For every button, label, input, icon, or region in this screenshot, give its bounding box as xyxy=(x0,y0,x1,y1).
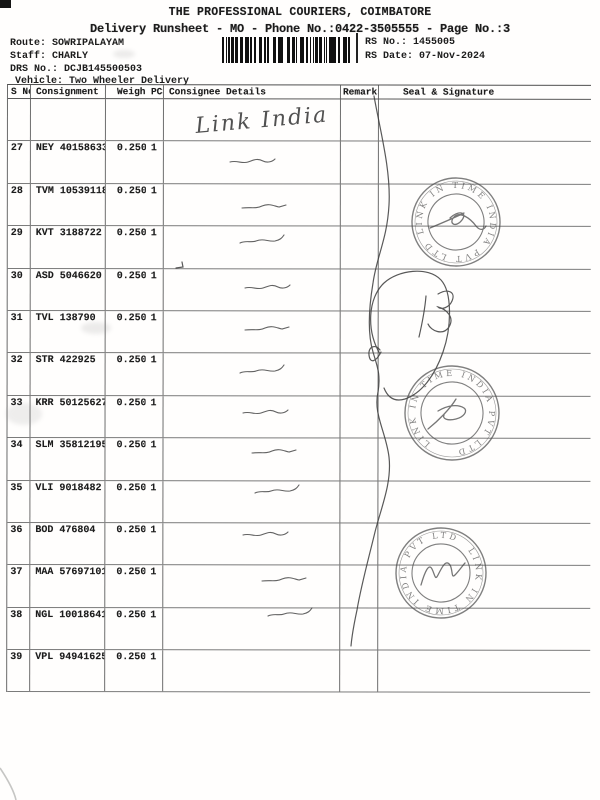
scanned-delivery-runsheet: THE PROFESSIONAL COURIERS, COIMBATORE De… xyxy=(0,0,600,800)
cell-consignee xyxy=(163,438,340,480)
cell-pcs: 1 xyxy=(145,481,163,522)
cell-pcs: 1 xyxy=(145,438,163,479)
cell-sno: 34 xyxy=(7,438,30,479)
staff-line: Staff: CHARLY xyxy=(10,51,189,64)
rs-no-label: RS No.: xyxy=(365,37,407,48)
cell-consignee xyxy=(164,311,341,353)
cell-seal xyxy=(379,227,591,269)
cell-weight: 0.250 xyxy=(105,650,145,691)
cell-consignment: KVT 3188722 xyxy=(31,226,106,267)
cell-sno: 39 xyxy=(7,650,30,691)
cell-sno: 38 xyxy=(7,608,30,649)
rs-date-label: RS Date: xyxy=(365,51,413,62)
drs-label: DRS No.: xyxy=(10,64,58,75)
cell-consignee xyxy=(164,184,341,226)
cell-pcs: 1 xyxy=(146,311,164,352)
table-header-row: S No Consignment No Weight PCS Consignee… xyxy=(8,85,591,100)
table-row: 36 BOD 476804 0.250 1 xyxy=(7,523,590,566)
rs-no-line: RS No.: 1455005 xyxy=(365,36,485,50)
cell-consignment: VPL 949416253 xyxy=(30,650,105,691)
table-row: 39 VPL 949416253 0.250 1 xyxy=(7,650,590,693)
route-value: SOWRIPALAYAM xyxy=(52,38,124,49)
cell-sno: 29 xyxy=(8,226,31,267)
cell-pcs xyxy=(146,99,164,140)
route-line: Route: SOWRIPALAYAM xyxy=(10,38,189,51)
cell-remarks xyxy=(341,142,379,183)
cell-sno: 27 xyxy=(8,141,31,182)
cell-weight: 0.250 xyxy=(105,608,145,649)
cell-seal xyxy=(379,354,591,396)
cell-remarks xyxy=(340,523,378,564)
cell-weight: 0.250 xyxy=(106,353,146,394)
cell-pcs: 1 xyxy=(145,565,163,606)
column-header-weight: Weight xyxy=(106,85,146,98)
cell-consignment: VLI 9018482 xyxy=(30,481,105,522)
cell-consignee xyxy=(164,142,341,184)
table-row: 34 SLM 358121955 0.250 1 xyxy=(7,438,590,481)
cell-consignment: NGL 100186410 xyxy=(30,608,105,649)
cell-seal xyxy=(379,100,591,142)
cell-sno: 31 xyxy=(8,311,31,352)
cell-consignment: MAA 576971019 xyxy=(30,565,105,606)
table-row: 31 TVL 138790 0.250 1 xyxy=(8,311,591,354)
cell-sno: 35 xyxy=(7,481,30,522)
column-header-remarks: Remarks xyxy=(341,85,379,98)
cell-seal xyxy=(378,439,590,481)
drs-line: DRS No.: DCJB145500503 xyxy=(10,64,189,77)
cell-pcs: 1 xyxy=(146,184,164,225)
rs-date-line: RS Date: 07-Nov-2024 xyxy=(365,50,485,64)
cell-weight: 0.250 xyxy=(106,142,146,183)
cell-weight: 0.250 xyxy=(106,311,146,352)
cell-consignment: SLM 358121955 xyxy=(30,438,105,479)
cell-pcs: 1 xyxy=(145,650,163,691)
cell-consignee xyxy=(163,481,340,523)
cell-consignee xyxy=(164,269,341,311)
cell-weight xyxy=(106,99,146,140)
table-row: 38 NGL 100186410 0.250 1 xyxy=(7,608,590,651)
column-header-consignment: Consignment No xyxy=(31,85,106,98)
cell-consignee xyxy=(164,354,341,396)
cell-consignment: KRR 50125627 xyxy=(31,396,106,437)
cell-seal xyxy=(378,566,590,608)
cell-pcs: 1 xyxy=(146,226,164,267)
table-row: 28 TVM 10539118 0.250 1 xyxy=(8,184,591,227)
cell-consignment xyxy=(31,99,106,140)
cell-remarks xyxy=(341,396,379,437)
cell-remarks xyxy=(341,311,379,352)
cell-consignee xyxy=(164,396,341,438)
cell-consignee xyxy=(163,650,340,692)
cell-weight: 0.250 xyxy=(106,226,146,267)
cell-remarks xyxy=(341,269,379,310)
consignment-table: S No Consignment No Weight PCS Consignee… xyxy=(6,84,591,693)
cell-consignment: STR 422925 xyxy=(31,353,106,394)
cell-pcs: 1 xyxy=(145,608,163,649)
cell-sno: 36 xyxy=(7,523,30,564)
cell-sno: 28 xyxy=(8,184,31,225)
rs-info: RS No.: 1455005 RS Date: 07-Nov-2024 xyxy=(365,36,485,64)
cell-sno: 32 xyxy=(8,353,31,394)
cell-consignee xyxy=(164,99,341,141)
cell-remarks xyxy=(340,651,378,692)
cell-weight: 0.250 xyxy=(106,184,146,225)
staff-label: Staff: xyxy=(10,51,46,62)
cell-remarks xyxy=(341,184,379,225)
cell-seal xyxy=(378,651,590,693)
cell-weight: 0.250 xyxy=(105,438,145,479)
cell-pcs: 1 xyxy=(146,269,164,310)
runsheet-barcode xyxy=(222,37,352,63)
cell-seal xyxy=(378,481,590,523)
cell-consignment: BOD 476804 xyxy=(30,523,105,564)
table-row: 33 KRR 50125627 0.250 1 xyxy=(8,396,591,439)
page-subtitle: Delivery Runsheet - MO - Phone No.:0422-… xyxy=(0,22,600,36)
table-row: 30 ASD 5046620 0.250 1 xyxy=(8,269,591,312)
table-row: 35 VLI 9018482 0.250 1 xyxy=(7,481,590,524)
column-header-sno: S No xyxy=(8,85,31,98)
cell-remarks xyxy=(340,566,378,607)
table-row: 37 MAA 576971019 0.250 1 xyxy=(7,565,590,608)
cell-weight: 0.250 xyxy=(106,396,146,437)
cell-remarks xyxy=(340,481,378,522)
cell-remarks xyxy=(341,99,379,140)
divider-line xyxy=(356,33,358,63)
cell-seal xyxy=(378,608,590,650)
column-header-seal: Seal & Signature xyxy=(379,86,591,99)
staff-value: CHARLY xyxy=(52,51,88,62)
cell-weight: 0.250 xyxy=(105,565,145,606)
column-header-pcs: PCS xyxy=(146,85,164,98)
table-row: 27 NEY 40158633 0.250 1 xyxy=(8,141,591,184)
cell-weight: 0.250 xyxy=(105,523,145,564)
cell-sno: 37 xyxy=(7,565,30,606)
cell-pcs: 1 xyxy=(145,523,163,564)
cell-consignee xyxy=(163,608,340,650)
cell-remarks xyxy=(340,439,378,480)
cell-consignment: ASD 5046620 xyxy=(31,269,106,310)
cell-seal xyxy=(378,523,590,565)
cell-consignment: TVM 10539118 xyxy=(31,184,106,225)
cell-consignee xyxy=(164,226,341,268)
cell-pcs: 1 xyxy=(146,142,164,183)
cell-consignment: NEY 40158633 xyxy=(31,141,106,182)
cell-seal xyxy=(379,311,591,353)
table-row xyxy=(8,99,591,142)
cell-weight: 0.250 xyxy=(106,269,146,310)
cell-pcs: 1 xyxy=(146,354,164,395)
drs-value: DCJB145500503 xyxy=(64,64,142,75)
rs-no-value: 1455005 xyxy=(413,37,455,48)
cell-remarks xyxy=(341,354,379,395)
cell-sno: 33 xyxy=(8,396,31,437)
runsheet-meta: Route: SOWRIPALAYAM Staff: CHARLY DRS No… xyxy=(10,38,189,89)
cell-sno: 30 xyxy=(8,269,31,310)
table-row: 32 STR 422925 0.250 1 xyxy=(8,353,591,396)
cell-consignment: TVL 138790 xyxy=(31,311,106,352)
cell-seal xyxy=(379,184,591,226)
page-title: THE PROFESSIONAL COURIERS, COIMBATORE xyxy=(0,6,600,19)
column-header-consignee: Consignee Details xyxy=(164,85,341,98)
cell-weight: 0.250 xyxy=(105,481,145,522)
cell-consignee xyxy=(163,566,340,608)
cell-consignee xyxy=(163,523,340,565)
table-row: 29 KVT 3188722 0.250 1 xyxy=(8,226,591,269)
page-curl-mark xyxy=(0,768,16,800)
cell-sno xyxy=(8,99,31,140)
route-label: Route: xyxy=(10,38,46,49)
cell-seal xyxy=(379,396,591,438)
cell-seal xyxy=(379,142,591,184)
cell-remarks xyxy=(340,608,378,649)
cell-remarks xyxy=(341,227,379,268)
cell-pcs: 1 xyxy=(146,396,164,437)
cell-seal xyxy=(379,269,591,311)
rs-date-value: 07-Nov-2024 xyxy=(419,51,485,62)
